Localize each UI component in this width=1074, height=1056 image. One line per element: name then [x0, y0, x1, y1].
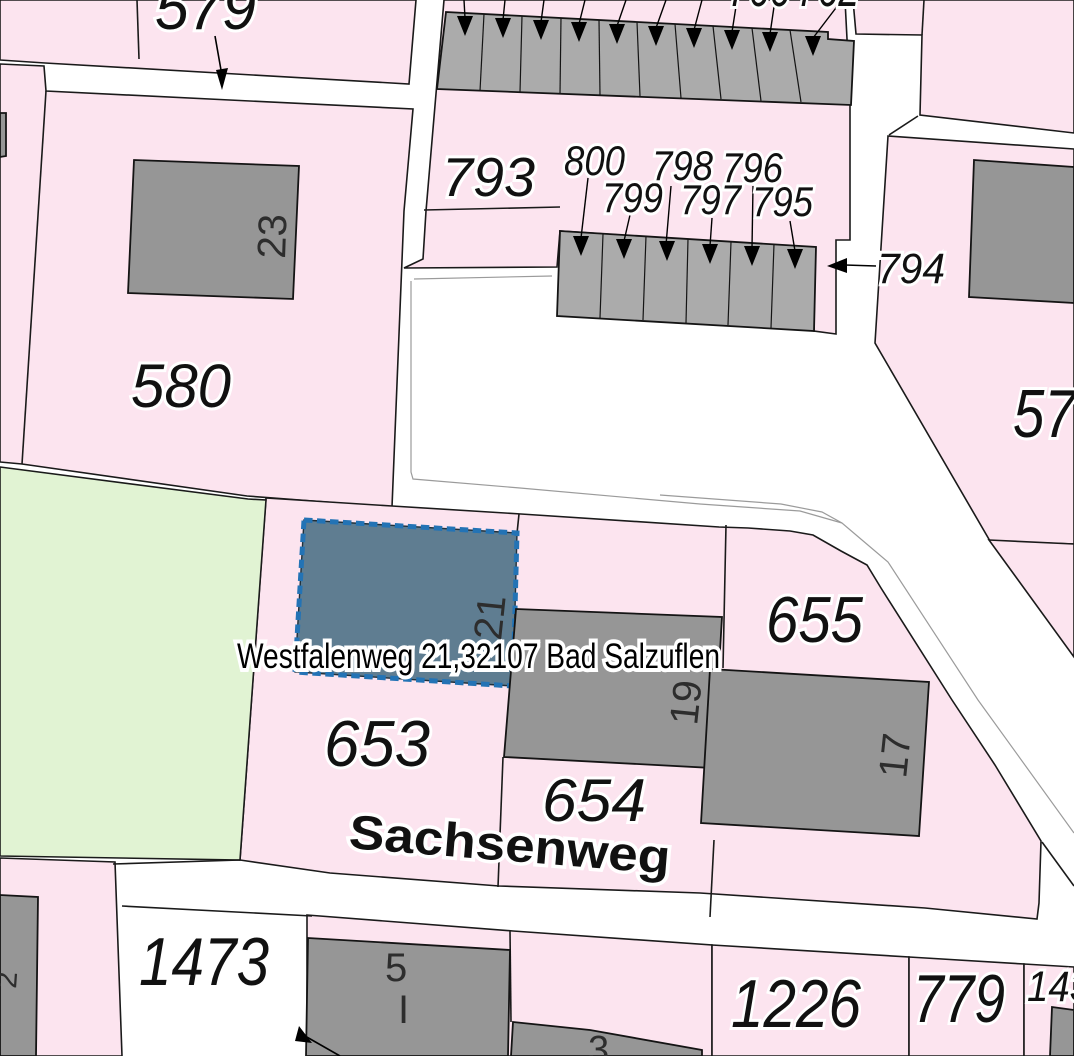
- svg-text:I: I: [398, 988, 409, 1032]
- svg-text:655: 655: [766, 583, 864, 656]
- svg-text:762: 762: [797, 0, 859, 18]
- svg-text:653: 653: [324, 707, 430, 780]
- svg-text:143: 143: [1027, 963, 1074, 1011]
- svg-text:21: 21: [466, 593, 514, 642]
- svg-text:5: 5: [385, 946, 407, 990]
- svg-text:579: 579: [155, 0, 256, 43]
- svg-text:779: 779: [913, 961, 1005, 1037]
- svg-text:766: 766: [728, 0, 790, 18]
- svg-text:793: 793: [442, 146, 535, 208]
- svg-text:795: 795: [752, 178, 814, 225]
- svg-text:1226: 1226: [731, 966, 861, 1042]
- svg-text:578: 578: [1013, 376, 1074, 452]
- svg-text:3: 3: [588, 1029, 609, 1056]
- svg-text:2: 2: [0, 971, 24, 990]
- svg-text:23: 23: [250, 213, 296, 259]
- svg-text:1473: 1473: [139, 924, 269, 1000]
- svg-text:19: 19: [662, 678, 710, 727]
- svg-text:Westfalenweg 21,32107 Bad Salz: Westfalenweg 21,32107 Bad Salzuflen: [237, 637, 720, 676]
- svg-text:794: 794: [877, 245, 945, 293]
- svg-text:580: 580: [131, 352, 231, 420]
- svg-text:17: 17: [871, 731, 919, 780]
